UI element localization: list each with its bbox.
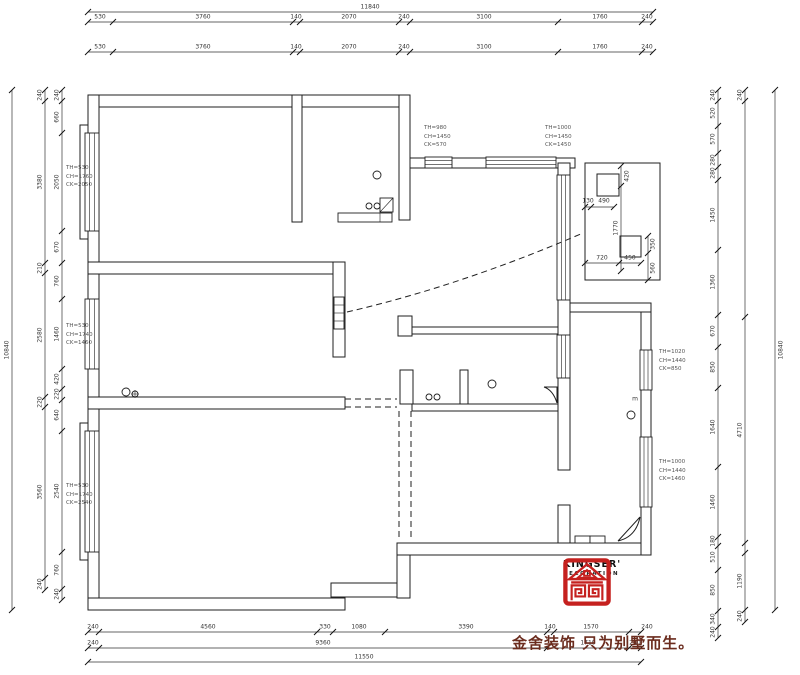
dim-label: 240 bbox=[710, 626, 717, 637]
dim-label: 3380 bbox=[37, 174, 44, 189]
corner-closet bbox=[618, 517, 640, 541]
dim-label: 420 bbox=[54, 373, 61, 384]
dim-label: 670 bbox=[710, 325, 717, 336]
logo-spiral-right bbox=[589, 585, 602, 600]
dim-label: 2580 bbox=[37, 327, 44, 342]
corner-shower bbox=[544, 387, 557, 403]
dim-label: 4560 bbox=[200, 624, 215, 631]
window bbox=[640, 350, 652, 390]
dim-label: 560 bbox=[650, 262, 657, 273]
dim-label: 180 bbox=[710, 535, 717, 546]
window-annotation: TH=1000 CH=1440 CK=1460 bbox=[659, 458, 686, 484]
window-annotation: TH=530 CH=1740 CK=2540 bbox=[66, 482, 93, 508]
window-annotation: TH=530 CH=1740 CK=1460 bbox=[66, 322, 93, 348]
dim-label: 1360 bbox=[710, 274, 717, 289]
dim-label: 530 bbox=[94, 44, 105, 51]
window bbox=[425, 157, 452, 168]
dim-label: 130 bbox=[582, 198, 593, 205]
logo-spiral-left bbox=[572, 585, 585, 600]
dim-label: 280 bbox=[710, 167, 717, 178]
dim-label: 220 bbox=[54, 388, 61, 399]
dim-label: 240 bbox=[37, 578, 44, 589]
dim-label: 10840 bbox=[778, 340, 785, 359]
dim-label: 2070 bbox=[341, 14, 356, 21]
dim-label: 3390 bbox=[458, 624, 473, 631]
dim-label: 350 bbox=[650, 238, 657, 249]
logo: KINGSER' DECORATION bbox=[563, 558, 615, 577]
dim-label: 3560 bbox=[37, 484, 44, 499]
dim-label: 240 bbox=[641, 44, 652, 51]
dim-label: 670 bbox=[54, 241, 61, 252]
dim-label: 240 bbox=[54, 588, 61, 599]
dim-label: 11840 bbox=[360, 4, 379, 11]
dim-label: 4710 bbox=[737, 422, 744, 437]
dim-label: 240 bbox=[87, 640, 98, 647]
dim-label: 140 bbox=[290, 14, 301, 21]
dim-label: 1190 bbox=[737, 573, 744, 588]
dim-label: 1640 bbox=[710, 419, 717, 434]
dim-label: 450 bbox=[624, 255, 635, 262]
dim-label: 240 bbox=[37, 89, 44, 100]
dim-label: 3100 bbox=[476, 14, 491, 21]
dim-label: 240 bbox=[87, 624, 98, 631]
dim-label: 10840 bbox=[4, 340, 11, 359]
dim-label: 1770 bbox=[613, 220, 620, 235]
dim-label: 140 bbox=[544, 624, 555, 631]
dim-label: 280 bbox=[710, 154, 717, 165]
dim-label: 2050 bbox=[54, 174, 61, 189]
dim-label: 2070 bbox=[341, 44, 356, 51]
dim-label: 210 bbox=[37, 262, 44, 273]
window-annotation: TH=1000 CH=1450 CK=1450 bbox=[545, 124, 572, 150]
dim-label: 520 bbox=[710, 107, 717, 118]
dim-label: 330 bbox=[319, 624, 330, 631]
dim-label: 510 bbox=[710, 551, 717, 562]
dim-label: 240 bbox=[737, 89, 744, 100]
dim-label: 760 bbox=[54, 275, 61, 286]
window-annotation: TH=980 CH=1450 CK=570 bbox=[424, 124, 451, 150]
dim-label: 760 bbox=[54, 564, 61, 575]
logo-emblem bbox=[563, 558, 611, 606]
window bbox=[640, 437, 652, 507]
dim-label: m bbox=[632, 396, 638, 403]
dim-label: 1460 bbox=[710, 494, 717, 509]
slogan-text: 金舍装饰 只为别墅而生。 bbox=[512, 632, 672, 653]
dim-label: 3760 bbox=[195, 14, 210, 21]
kitchen-counter bbox=[338, 213, 392, 222]
dim-label: 240 bbox=[710, 89, 717, 100]
dim-label: 3100 bbox=[476, 44, 491, 51]
dim-label: 240 bbox=[398, 14, 409, 21]
dim-label: 1460 bbox=[54, 326, 61, 341]
dim-label: 220 bbox=[37, 396, 44, 407]
window-annotation: TH=1020 CH=1440 CK=850 bbox=[659, 348, 686, 374]
dim-label: 850 bbox=[710, 361, 717, 372]
dim-label: 420 bbox=[624, 170, 631, 181]
dim-label: 240 bbox=[641, 624, 652, 631]
dim-label: 850 bbox=[710, 584, 717, 595]
floor-plan-svg bbox=[0, 0, 800, 675]
window bbox=[486, 157, 556, 168]
dim-label: 720 bbox=[596, 255, 607, 262]
windows-layer bbox=[85, 133, 652, 552]
dim-label: 1080 bbox=[351, 624, 366, 631]
dim-label: 570 bbox=[710, 133, 717, 144]
dim-label: 1760 bbox=[592, 44, 607, 51]
dim-label: 240 bbox=[54, 89, 61, 100]
dim-label: 240 bbox=[737, 610, 744, 621]
window-annotation: TH=530 CH=1760 CK=2050 bbox=[66, 164, 93, 190]
dim-label: 240 bbox=[641, 14, 652, 21]
floorplan-canvas: 1184053037601402070240310017602405303760… bbox=[0, 0, 800, 675]
dim-label: 1570 bbox=[583, 624, 598, 631]
dim-label: 1760 bbox=[592, 14, 607, 21]
window bbox=[557, 335, 570, 378]
dim-label: 3760 bbox=[195, 44, 210, 51]
window bbox=[557, 175, 570, 300]
dim-label: 1450 bbox=[710, 207, 717, 222]
dim-label: 530 bbox=[94, 14, 105, 21]
dim-label: 140 bbox=[290, 44, 301, 51]
dim-label: 340 bbox=[710, 613, 717, 624]
dim-label: 640 bbox=[54, 409, 61, 420]
dim-label: 2540 bbox=[54, 483, 61, 498]
dim-label: 660 bbox=[54, 111, 61, 122]
dim-label: 11550 bbox=[354, 654, 373, 661]
dim-label: 240 bbox=[398, 44, 409, 51]
dim-label: 490 bbox=[598, 198, 609, 205]
dim-label: 9360 bbox=[315, 640, 330, 647]
